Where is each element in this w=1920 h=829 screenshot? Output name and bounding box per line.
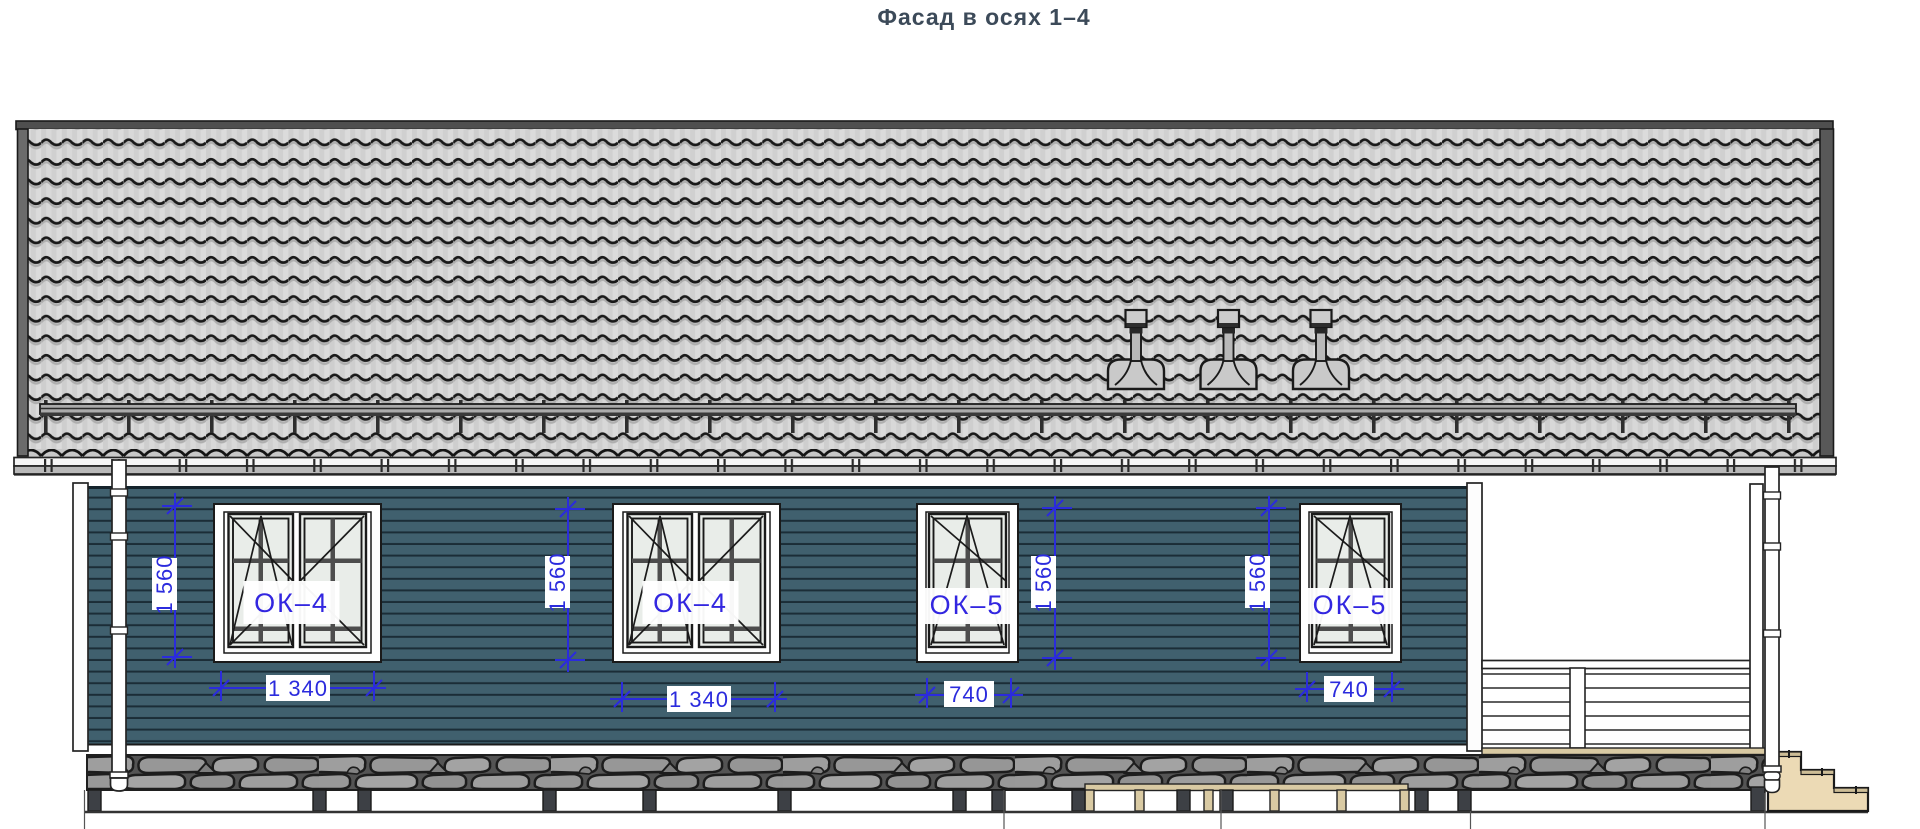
svg-text:740: 740 <box>949 682 989 707</box>
svg-text:1 560: 1 560 <box>545 552 570 612</box>
svg-text:ОК–5: ОК–5 <box>930 590 1005 620</box>
svg-text:1 560: 1 560 <box>152 554 177 614</box>
svg-text:1 340: 1 340 <box>268 676 328 701</box>
svg-text:1 340: 1 340 <box>669 687 729 712</box>
svg-text:740: 740 <box>1329 677 1369 702</box>
svg-text:1 560: 1 560 <box>1031 552 1056 612</box>
svg-text:ОК–4: ОК–4 <box>254 588 329 618</box>
svg-text:1 560: 1 560 <box>1245 552 1270 612</box>
svg-text:Фасад в осях 1–4: Фасад в осях 1–4 <box>877 4 1090 30</box>
